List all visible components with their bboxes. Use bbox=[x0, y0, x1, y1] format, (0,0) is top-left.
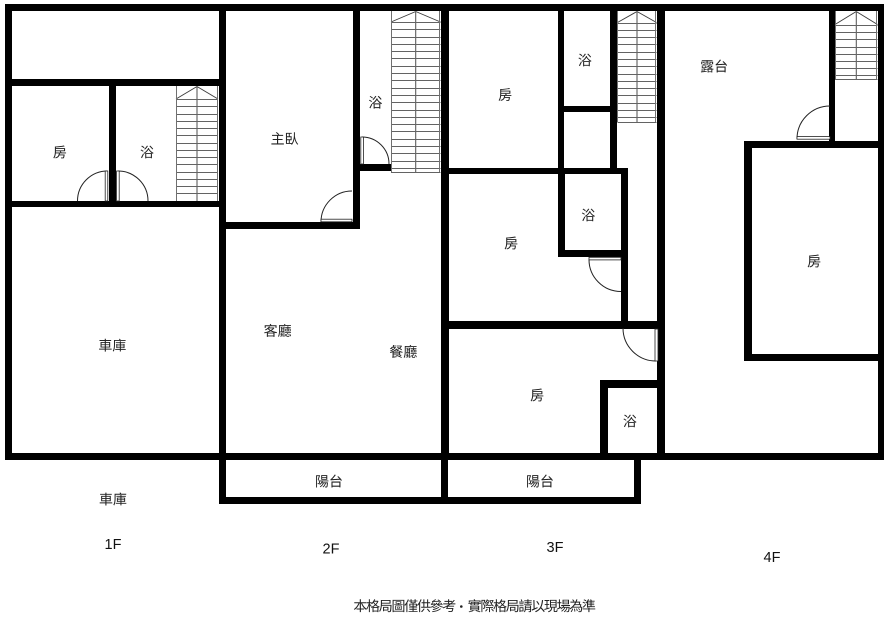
svg-text:4F: 4F bbox=[764, 550, 781, 566]
svg-text:3F: 3F bbox=[547, 540, 564, 556]
svg-text:2F: 2F bbox=[323, 542, 340, 558]
svg-text:1F: 1F bbox=[105, 537, 122, 553]
